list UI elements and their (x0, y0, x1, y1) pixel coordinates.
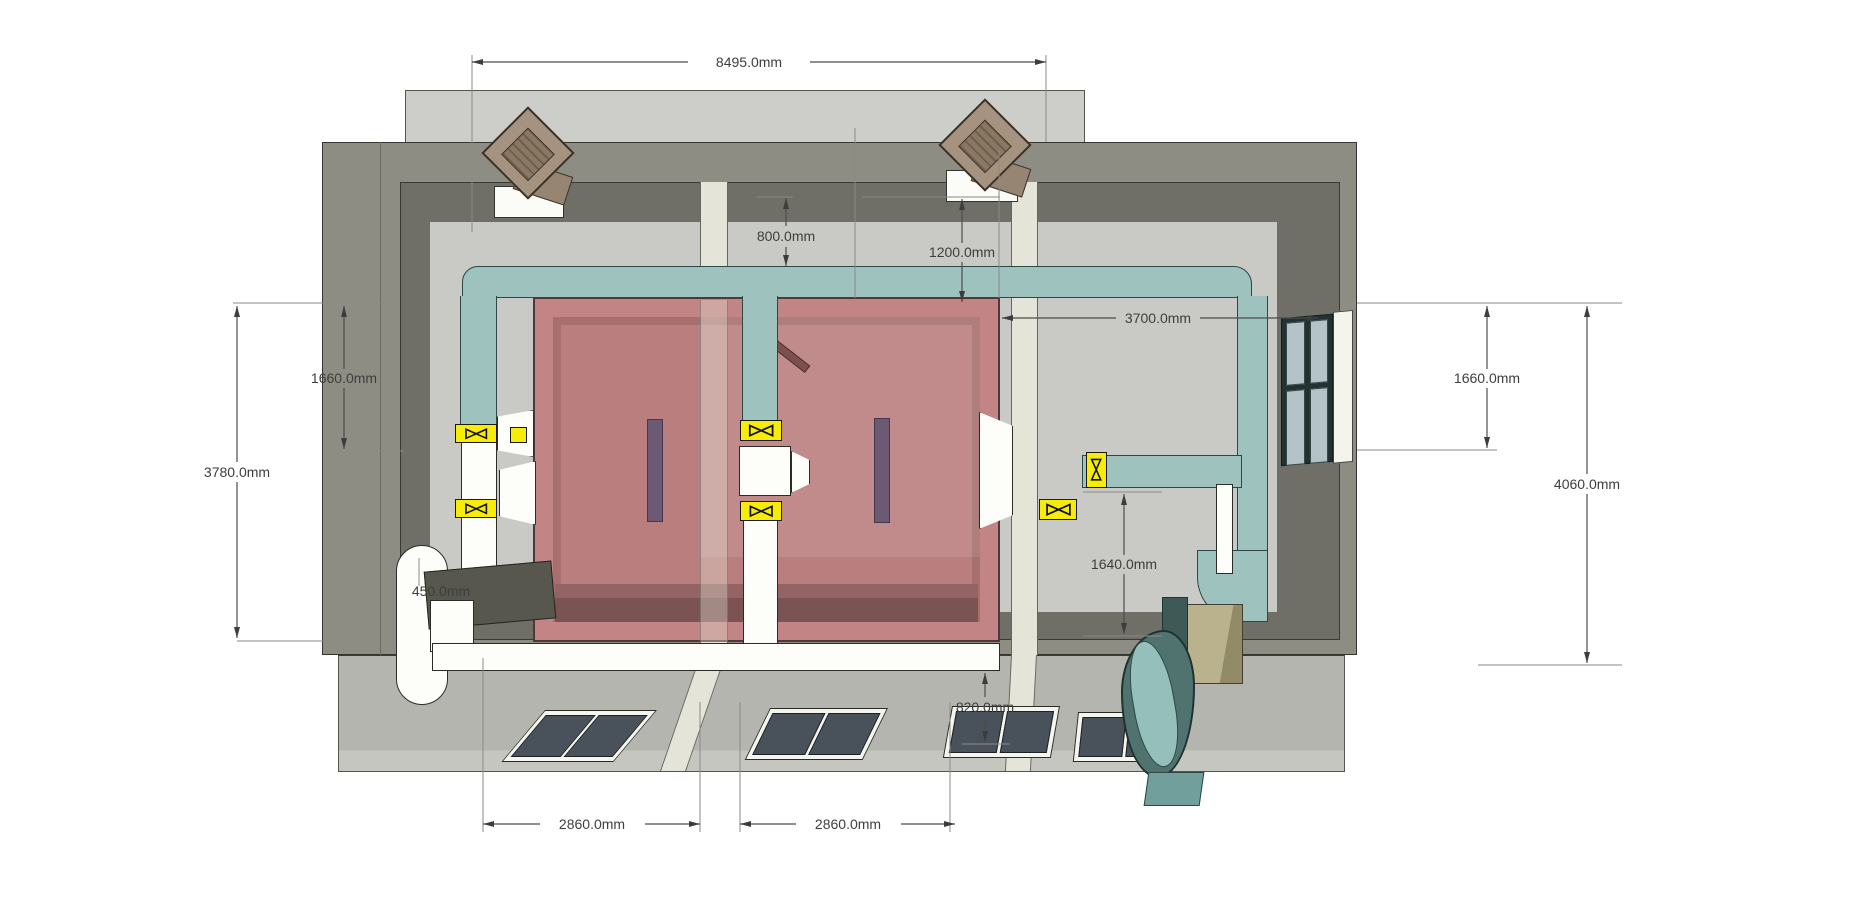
dim-label-1660-left: 1660.0mm (311, 370, 377, 386)
dim-label-450: 450.0mm (412, 583, 470, 599)
dim-label-1200: 1200.0mm (929, 244, 995, 260)
dim-label-1640: 1640.0mm (1091, 556, 1157, 572)
dim-label-820: 820.0mm (956, 699, 1014, 715)
dim-label-8495: 8495.0mm (716, 54, 782, 70)
dim-label-1660-right: 1660.0mm (1454, 370, 1520, 386)
dimension-lines (237, 62, 1587, 824)
dim-label-4060: 4060.0mm (1554, 476, 1620, 492)
dim-label-2860-left: 2860.0mm (559, 816, 625, 832)
dim-label-800: 800.0mm (757, 228, 815, 244)
extension-lines (233, 55, 1622, 832)
dim-label-2860-right: 2860.0mm (815, 816, 881, 832)
cad-viewport[interactable]: 8495.0mm 800.0mm 1200.0mm 3700.0mm 1660.… (0, 0, 1852, 915)
dimension-layer: 8495.0mm 800.0mm 1200.0mm 3700.0mm 1660.… (0, 0, 1852, 915)
dim-label-3780: 3780.0mm (204, 464, 270, 480)
dim-label-3700: 3700.0mm (1125, 310, 1191, 326)
